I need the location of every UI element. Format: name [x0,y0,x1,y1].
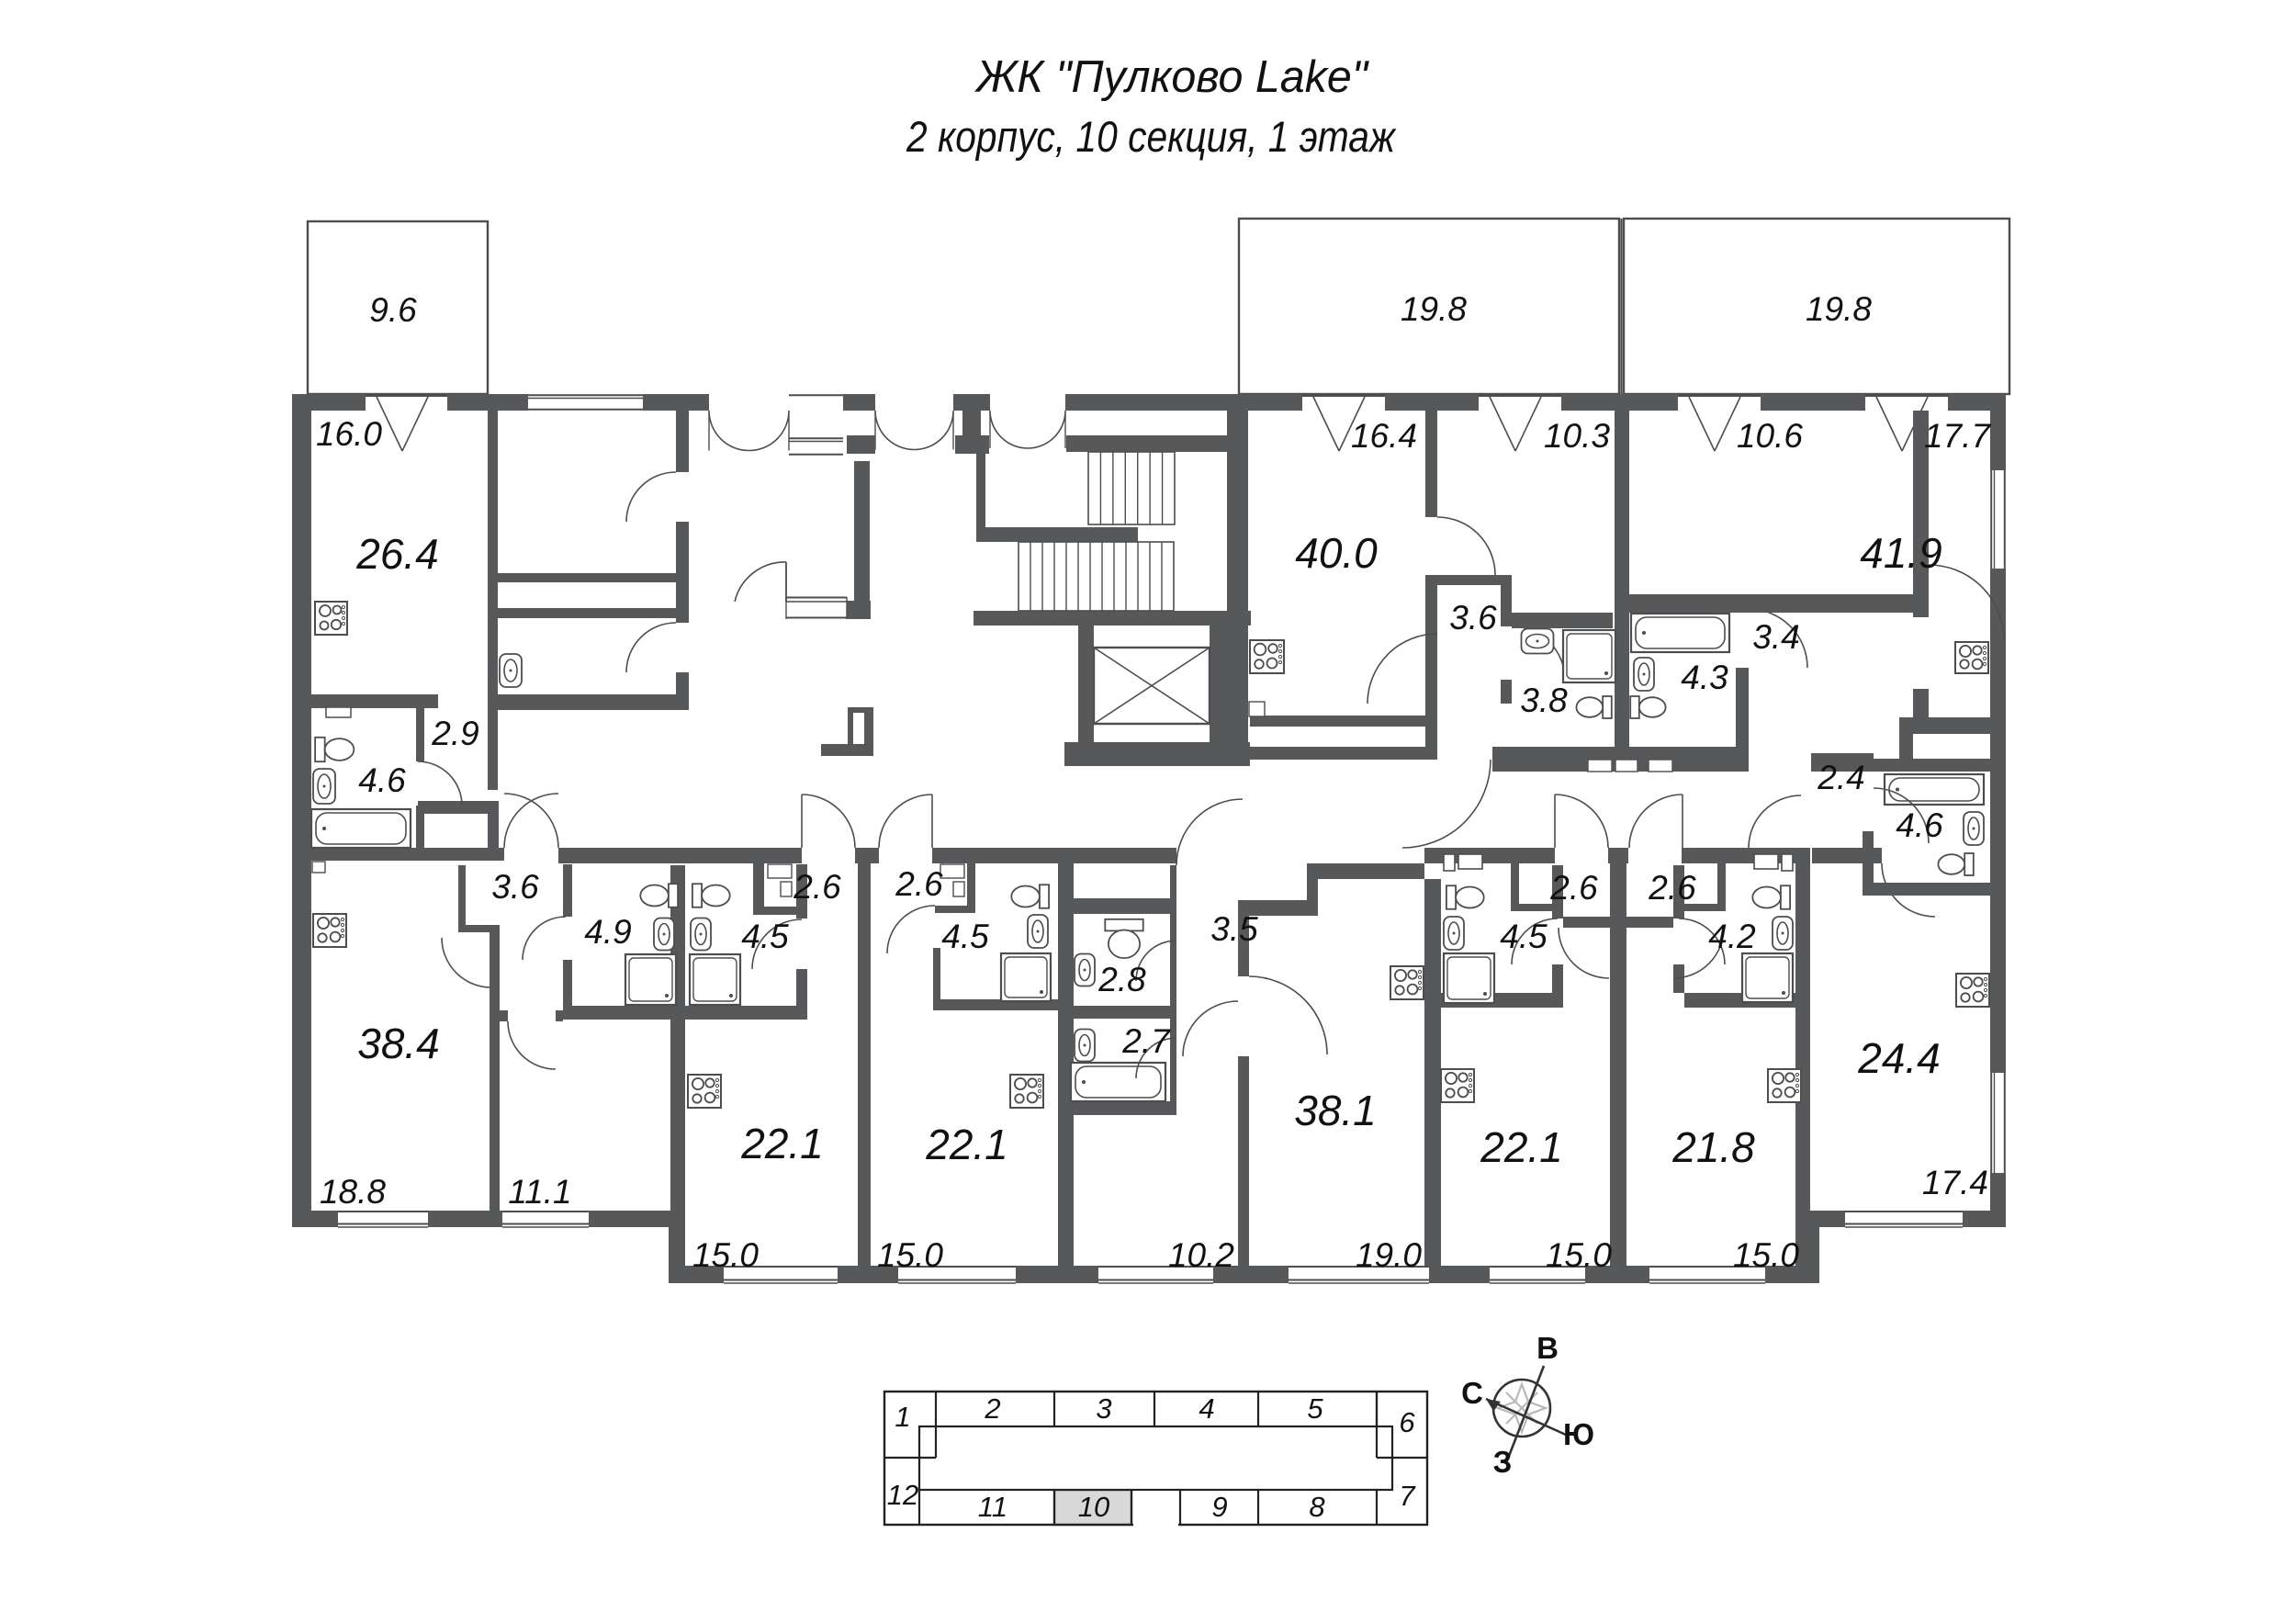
svg-text:38.1: 38.1 [1294,1087,1377,1134]
svg-text:7: 7 [1399,1480,1416,1512]
svg-text:10.2: 10.2 [1168,1236,1234,1274]
svg-text:4.5: 4.5 [941,918,989,955]
svg-text:15.0: 15.0 [1733,1236,1799,1274]
svg-text:18.8: 18.8 [320,1173,386,1211]
svg-text:3.6: 3.6 [491,868,539,906]
svg-text:22.1: 22.1 [740,1120,824,1167]
svg-text:17.4: 17.4 [1922,1164,1988,1201]
svg-text:2.4: 2.4 [1817,759,1864,796]
svg-text:12: 12 [887,1479,918,1511]
svg-text:З: З [1493,1445,1513,1479]
svg-text:ЖК "Пулково Lake": ЖК "Пулково Lake" [974,52,1370,102]
svg-text:19.8: 19.8 [1806,290,1872,328]
svg-text:2: 2 [984,1392,1000,1425]
svg-text:2.6: 2.6 [1648,869,1696,907]
svg-text:2.6: 2.6 [793,868,841,906]
svg-text:Ю: Ю [1563,1417,1594,1451]
svg-text:3.6: 3.6 [1449,599,1497,637]
svg-text:15.0: 15.0 [1546,1236,1612,1274]
svg-text:8: 8 [1309,1491,1325,1523]
svg-text:4: 4 [1199,1392,1214,1425]
svg-text:22.1: 22.1 [925,1121,1008,1168]
svg-text:4.9: 4.9 [584,913,631,951]
svg-text:26.4: 26.4 [355,530,439,578]
svg-text:10.6: 10.6 [1737,417,1803,455]
svg-text:С: С [1461,1376,1483,1410]
svg-text:2.6: 2.6 [1549,869,1598,907]
svg-text:3.5: 3.5 [1210,910,1258,948]
svg-text:38.4: 38.4 [357,1020,440,1067]
svg-text:4.6: 4.6 [358,761,406,799]
svg-text:16.0: 16.0 [316,415,382,453]
svg-text:3.8: 3.8 [1520,682,1568,719]
svg-text:21.8: 21.8 [1671,1123,1755,1171]
svg-text:2.9: 2.9 [431,715,478,752]
svg-text:4.6: 4.6 [1896,806,1943,844]
svg-text:11: 11 [978,1491,1007,1523]
svg-text:5: 5 [1307,1392,1323,1425]
svg-text:4.2: 4.2 [1708,918,1756,955]
svg-text:15.0: 15.0 [692,1236,759,1274]
svg-text:22.1: 22.1 [1480,1123,1563,1171]
svg-text:41.9: 41.9 [1860,529,1942,577]
svg-text:9: 9 [1211,1491,1227,1523]
svg-text:10: 10 [1078,1491,1109,1523]
svg-text:4.5: 4.5 [1500,918,1548,955]
svg-text:2.6: 2.6 [895,865,943,903]
svg-text:19.0: 19.0 [1356,1236,1422,1274]
svg-text:2.7: 2.7 [1121,1022,1171,1060]
svg-text:19.8: 19.8 [1401,290,1467,328]
svg-text:6: 6 [1399,1406,1415,1438]
svg-text:9.6: 9.6 [369,291,417,329]
svg-text:4.3: 4.3 [1681,659,1728,696]
svg-text:2.8: 2.8 [1097,961,1146,998]
svg-text:3: 3 [1096,1392,1111,1425]
svg-text:11.1: 11.1 [508,1173,571,1211]
svg-text:4.5: 4.5 [741,918,789,955]
svg-text:40.0: 40.0 [1295,529,1378,577]
svg-text:24.4: 24.4 [1857,1034,1941,1082]
svg-text:17.7: 17.7 [1924,417,1991,455]
svg-text:15.0: 15.0 [877,1236,943,1274]
svg-text:В: В [1536,1331,1559,1365]
svg-text:1: 1 [895,1401,910,1433]
svg-text:16.4: 16.4 [1351,417,1417,455]
svg-text:3.4: 3.4 [1752,618,1799,656]
svg-text:2 корпус, 10 секция, 1 этаж: 2 корпус, 10 секция, 1 этаж [906,112,1397,161]
svg-text:10.3: 10.3 [1544,417,1610,455]
